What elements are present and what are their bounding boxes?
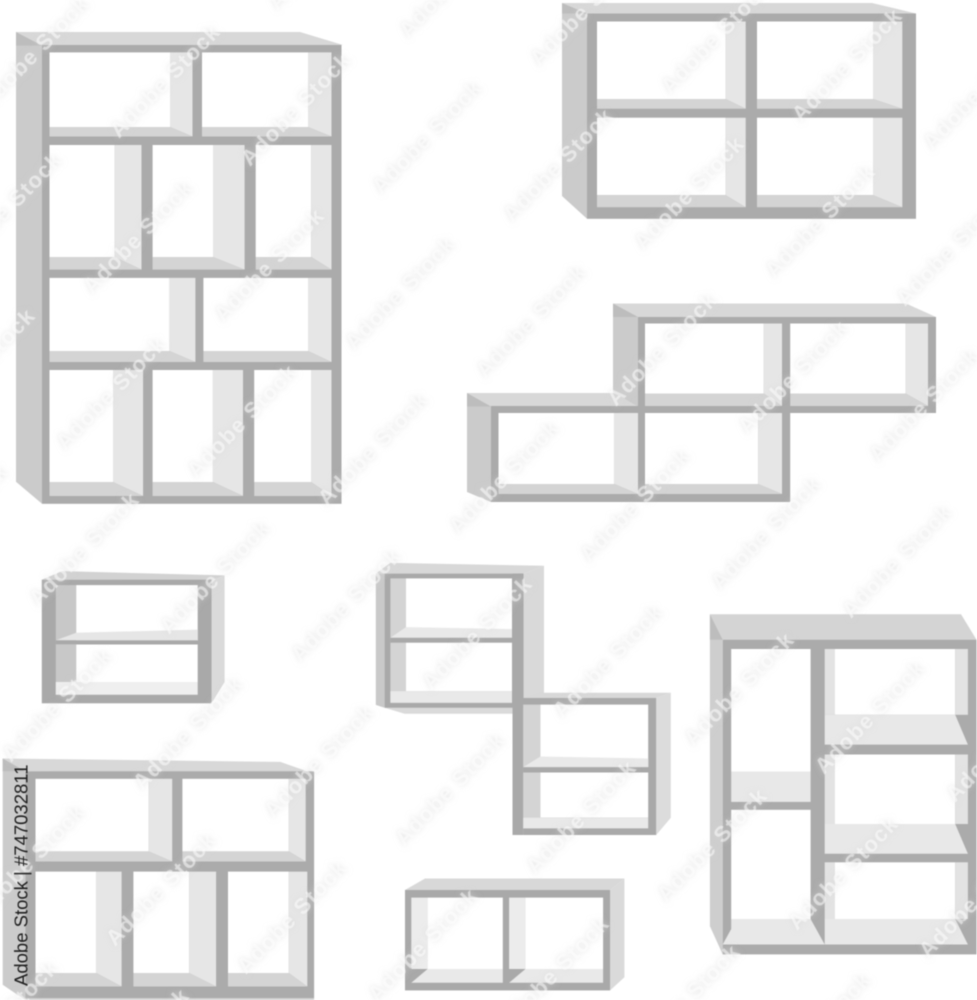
svg-text:Adobe Stock | #747032811: Adobe Stock | #747032811 [11, 764, 32, 986]
